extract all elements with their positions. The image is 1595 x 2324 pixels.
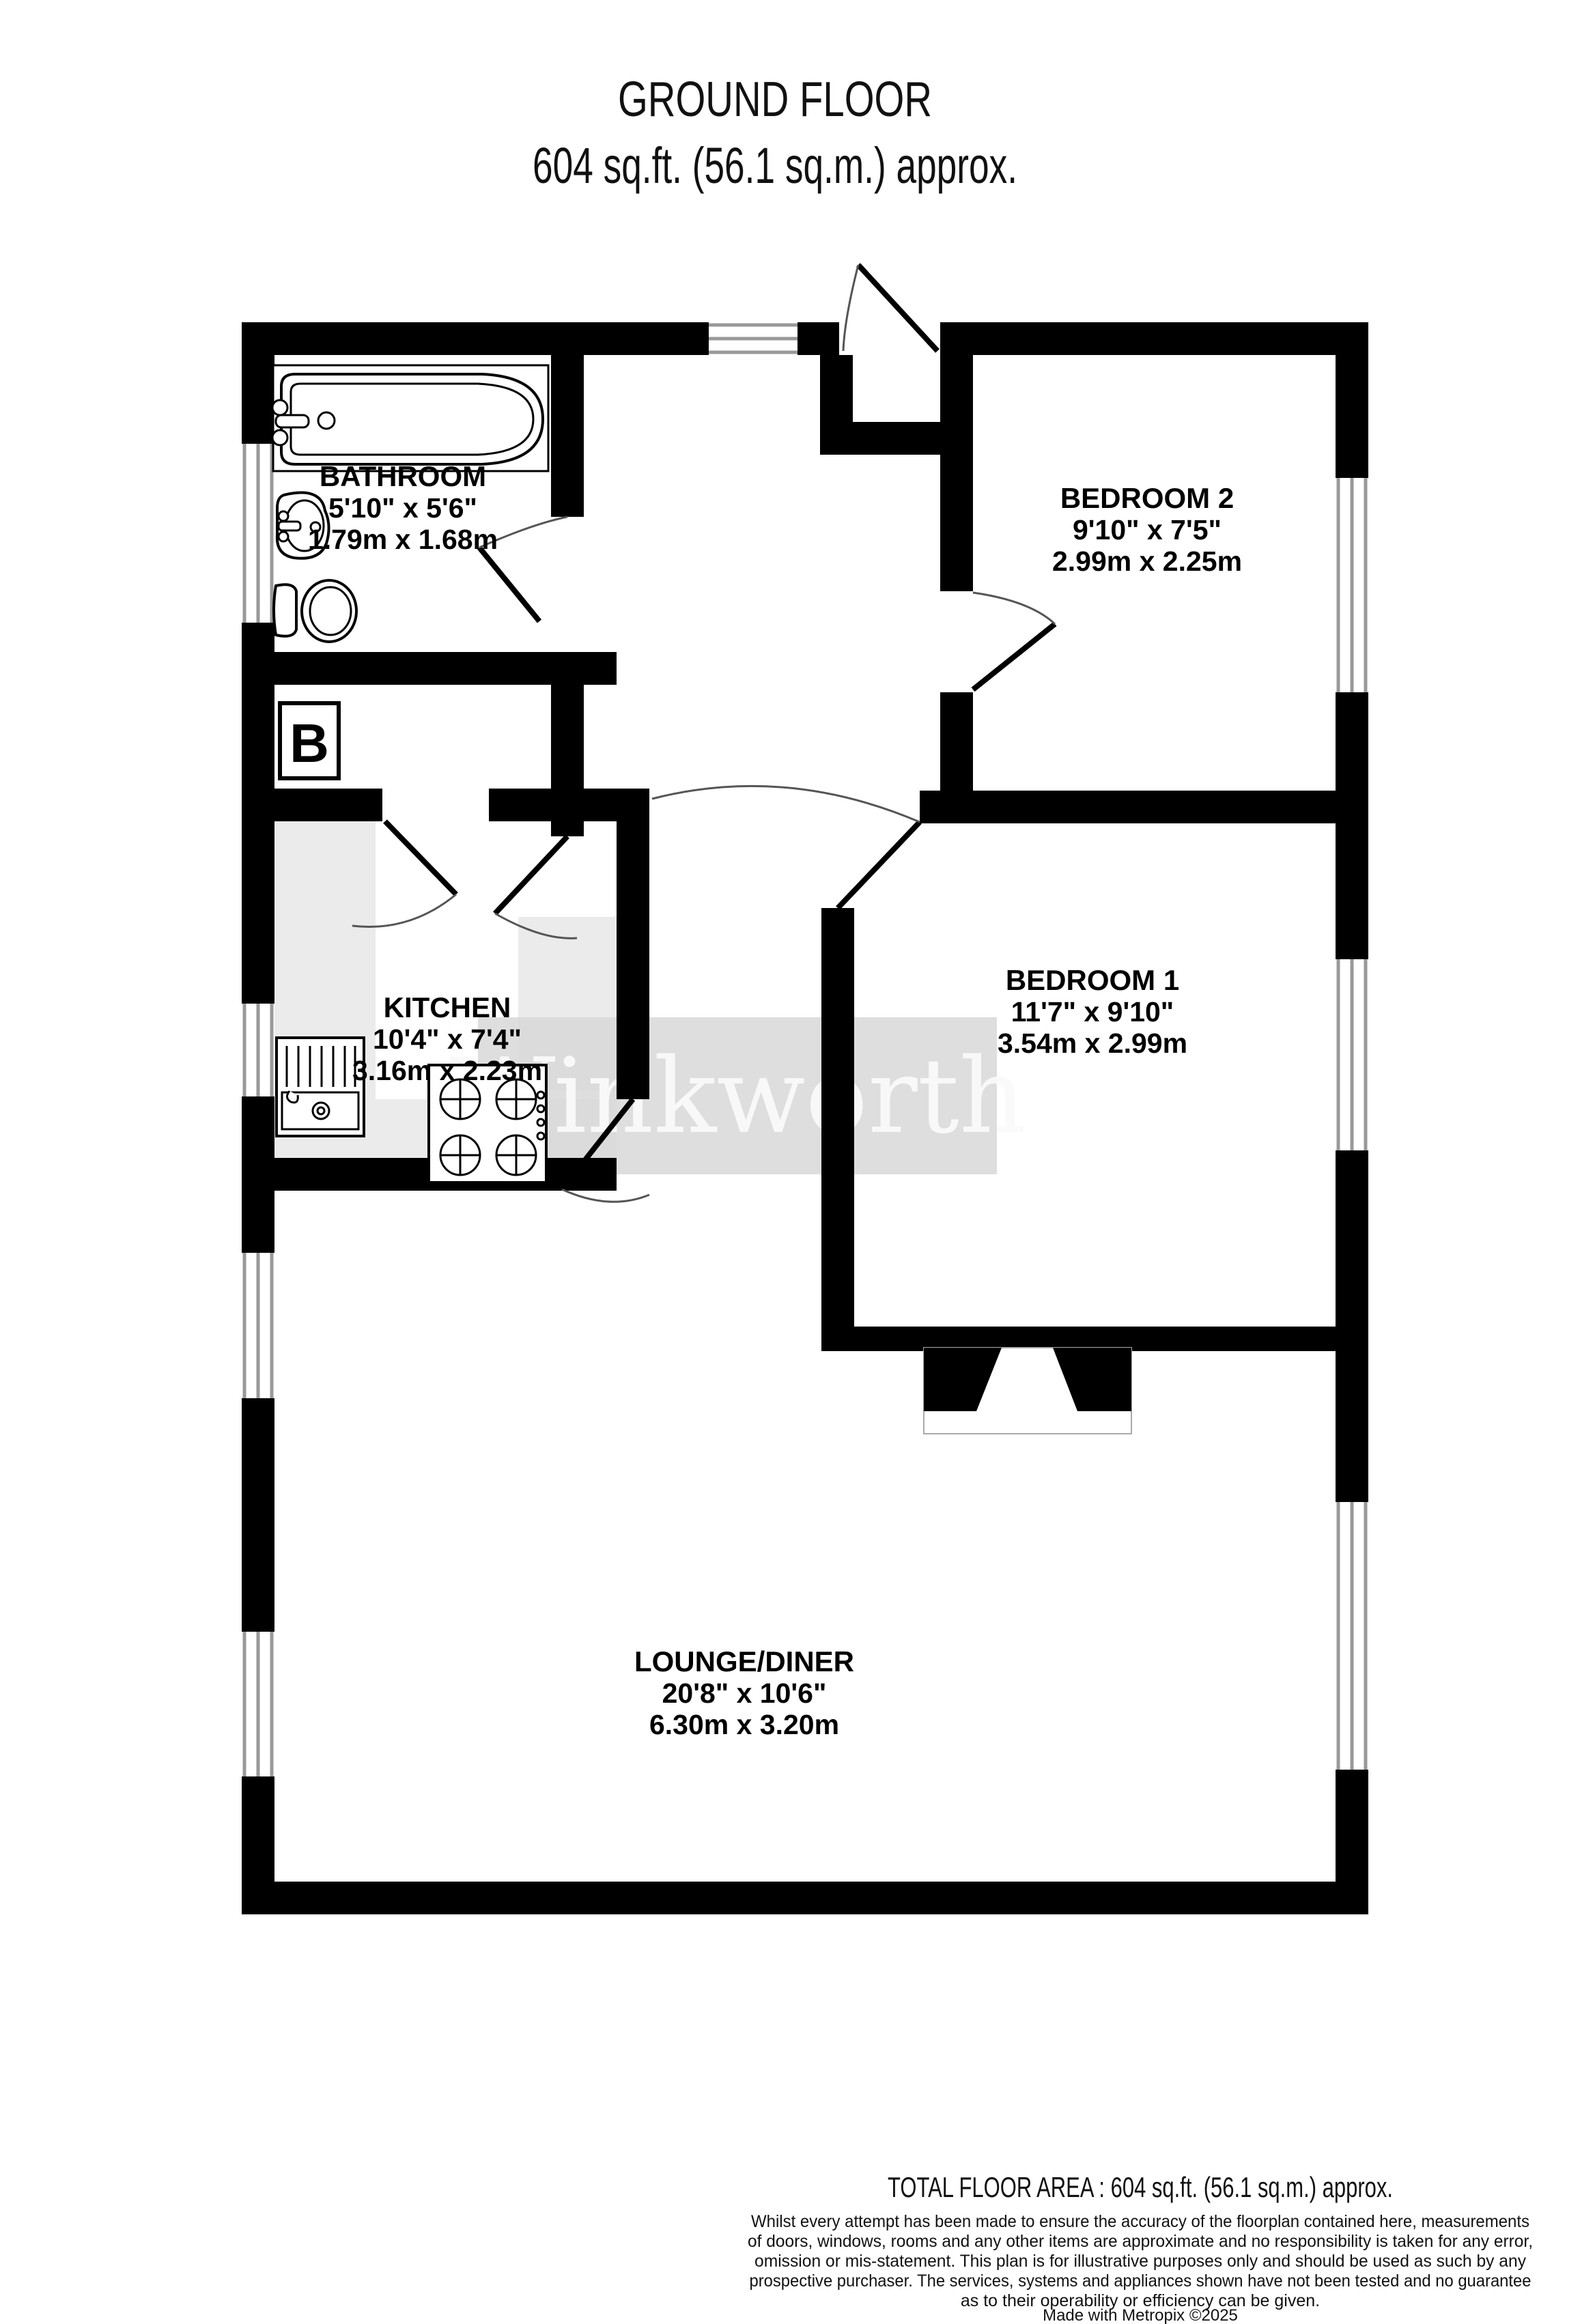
wall-bedroom1-left (821, 908, 854, 1351)
footer-block: TOTAL FLOOR AREA : 604 sq.ft. (56.1 sq.m… (748, 2171, 1533, 2324)
bedroom1-door (652, 786, 920, 908)
bathtub-icon (272, 365, 548, 471)
wall-top-left (242, 322, 709, 355)
footer-disclaimer-2: of doors, windows, rooms and any other i… (748, 2232, 1533, 2251)
window-bathroom (242, 444, 274, 623)
bedroom1-metric: 3.54m x 2.99m (998, 1028, 1187, 1059)
wall-bathroom-bottom (242, 652, 617, 685)
wall-bottom (242, 1882, 1368, 1914)
bathroom-metric: 1.79m x 1.68m (308, 524, 498, 555)
window-kitchen (242, 1004, 274, 1096)
footer-credit: Made with Metropix ©2025 (1043, 2306, 1238, 2324)
footer-disclaimer-1: Whilst every attempt has been made to en… (751, 2212, 1529, 2231)
title-line1: GROUND FLOOR (618, 72, 932, 127)
chimney-breast (924, 1348, 1131, 1434)
wall-top-right (940, 322, 1368, 355)
kitchen-name: KITCHEN (384, 991, 511, 1023)
window-lounge-left-1 (242, 1253, 274, 1398)
lounge-name: LOUNGE/DINER (634, 1645, 854, 1677)
wall-bedroom2-left-upper (940, 355, 973, 591)
footer-disclaimer-3: omission or mis-statement. This plan is … (754, 2252, 1526, 2271)
label-kitchen: KITCHEN 10'4" x 7'4" 3.16m x 2.23m (352, 991, 542, 1086)
wall-lobby-bottom-right (489, 789, 649, 821)
bathroom-name: BATHROOM (320, 460, 486, 492)
wall-bedroom2-bottom (920, 791, 1336, 823)
kitchen-metric: 3.16m x 2.23m (352, 1055, 542, 1086)
bathroom-imperial: 5'10" x 5'6" (328, 492, 477, 524)
wall-top-mid (797, 322, 839, 355)
footer-total: TOTAL FLOOR AREA : 604 sq.ft. (56.1 sq.m… (888, 2171, 1393, 2203)
label-bathroom: BATHROOM 5'10" x 5'6" 1.79m x 1.68m (308, 460, 498, 555)
wall-bedroom2-left-lower (940, 692, 973, 791)
front-door (843, 265, 937, 351)
label-lounge: LOUNGE/DINER 20'8" x 10'6" 6.30m x 3.20m (634, 1645, 854, 1740)
toilet-icon (274, 580, 356, 642)
kitchen-imperial: 10'4" x 7'4" (373, 1023, 522, 1055)
title-block: GROUND FLOOR 604 sq.ft. (56.1 sq.m.) app… (533, 72, 1017, 194)
title-line2: 604 sq.ft. (56.1 sq.m.) approx. (533, 137, 1017, 194)
footer-disclaimer-4: prospective purchaser. The services, sys… (750, 2271, 1532, 2291)
kitchen-sink-icon (277, 1038, 364, 1136)
bedroom2-name: BEDROOM 2 (1060, 482, 1234, 514)
label-bedroom1: BEDROOM 1 11'7" x 9'10" 3.54m x 2.99m (998, 964, 1187, 1059)
label-bedroom2: BEDROOM 2 9'10" x 7'5" 2.99m x 2.25m (1052, 482, 1242, 577)
window-bedroom2 (1336, 478, 1368, 692)
bedroom2-imperial: 9'10" x 7'5" (1073, 514, 1222, 545)
window-hall-top (709, 322, 797, 355)
wall-bathroom-right (551, 355, 584, 517)
bedroom1-name: BEDROOM 1 (1006, 964, 1179, 996)
bedroom1-imperial: 11'7" x 9'10" (1011, 996, 1174, 1028)
lounge-imperial: 20'8" x 10'6" (662, 1677, 827, 1709)
wall-kitchen-right (617, 821, 649, 1099)
bedroom2-door (973, 593, 1055, 690)
boiler-label: B (290, 713, 329, 774)
bedroom2-metric: 2.99m x 2.25m (1052, 545, 1242, 577)
window-bedroom1 (1336, 959, 1368, 1150)
boiler-box: B (280, 703, 339, 778)
wall-lobby-bottom-left (242, 789, 382, 821)
window-lounge-right (1336, 1502, 1368, 1770)
floorplan-canvas: GROUND FLOOR 604 sq.ft. (56.1 sq.m.) app… (0, 0, 1595, 2324)
floorplan-page: GROUND FLOOR 604 sq.ft. (56.1 sq.m.) app… (0, 0, 1595, 2324)
lounge-metric: 6.30m x 3.20m (649, 1709, 839, 1740)
window-lounge-left-2 (242, 1632, 274, 1776)
